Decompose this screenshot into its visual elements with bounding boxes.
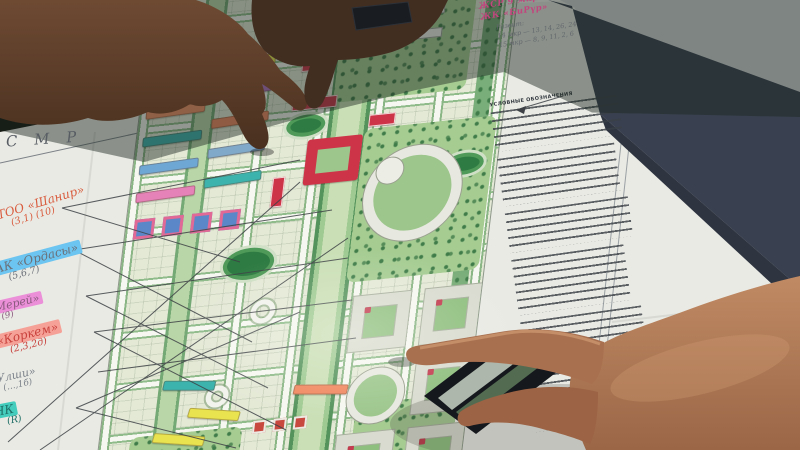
fingertip-shadow [250,148,274,156]
hands-layer [0,0,800,450]
photo-scene: УСЛОВНЫЕ ОБОЗНАЧЕНИЯ С М Р ТОО «Шанир» (… [0,0,800,450]
